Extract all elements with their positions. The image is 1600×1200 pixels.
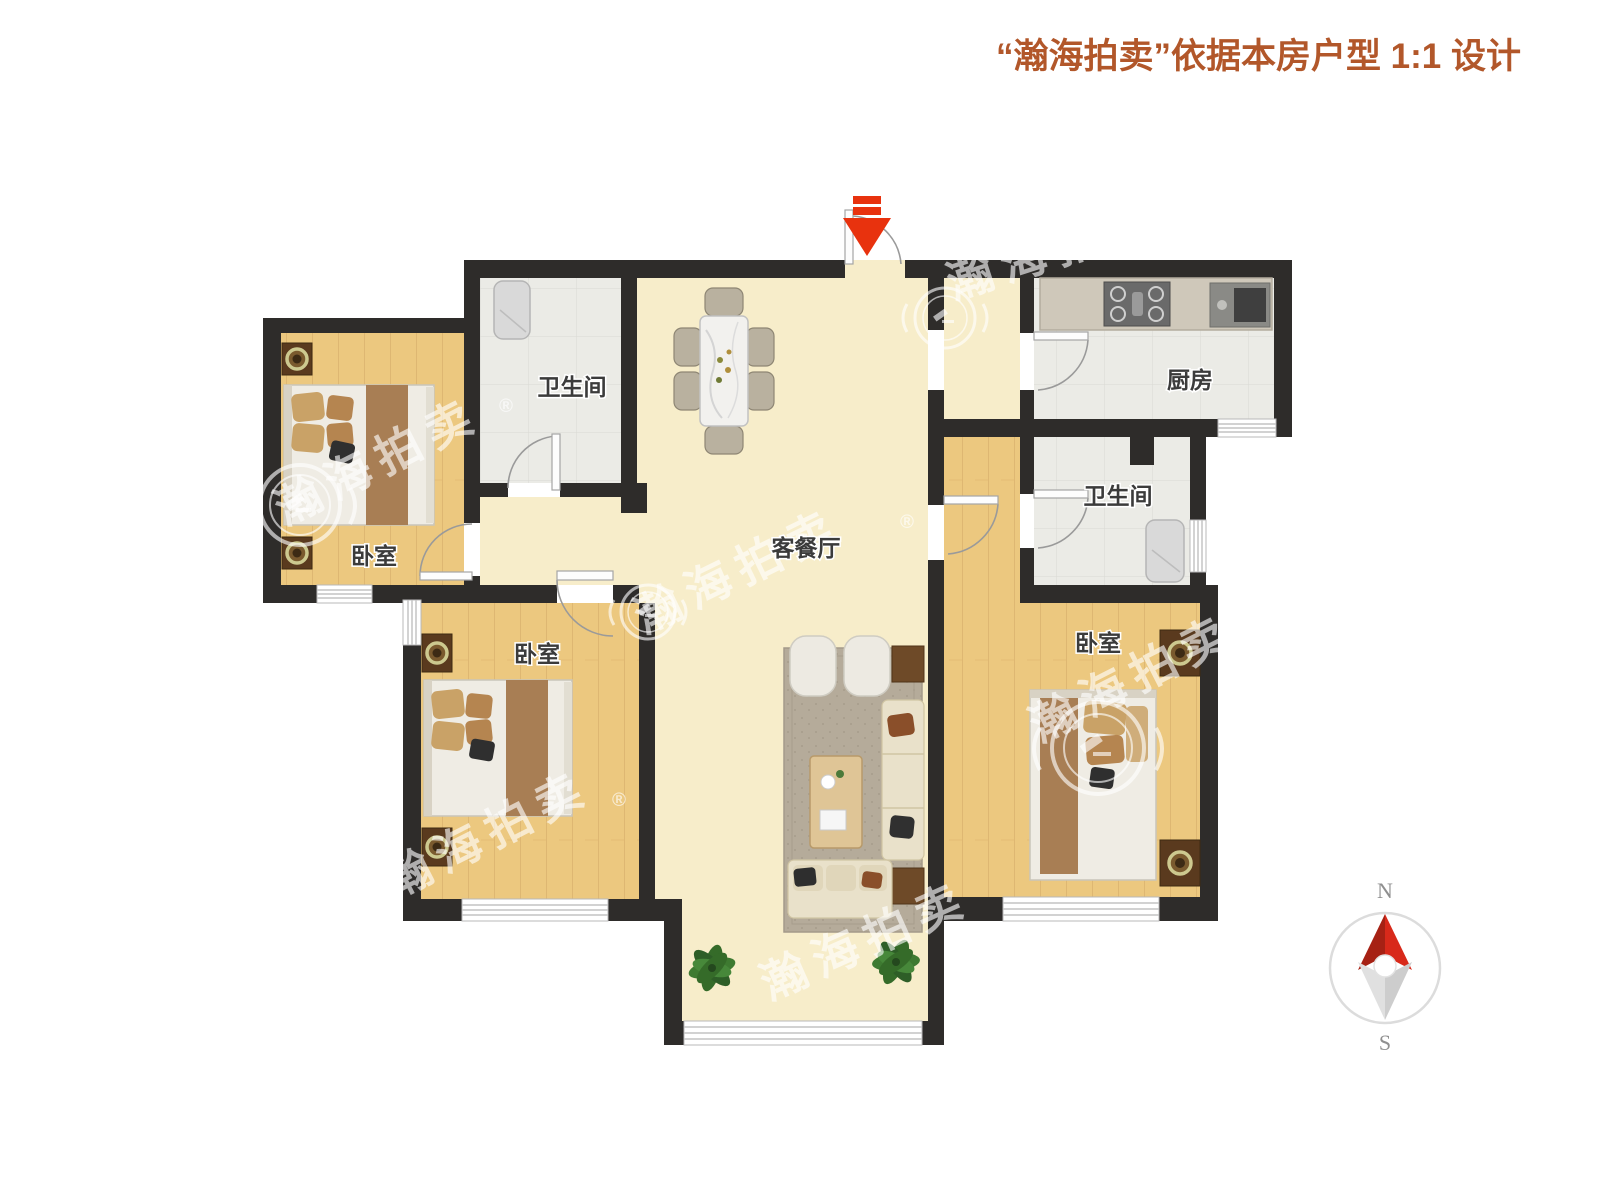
window-kitchen — [1218, 419, 1276, 437]
floor-bedroom-right-nook — [944, 437, 1020, 603]
side-table-icon — [892, 646, 924, 682]
sink-icon — [1210, 283, 1270, 327]
armchair-icon — [844, 636, 890, 696]
coffee-table-icon — [810, 756, 862, 848]
label-bathroom-left: 卫生间 — [538, 374, 607, 400]
kitchen-counter — [1040, 278, 1272, 330]
armchair-icon — [790, 636, 836, 696]
window-bedroom-middle-left — [403, 600, 421, 645]
registered-mark: ® — [499, 396, 513, 417]
entry-threshold — [845, 260, 905, 278]
stove-icon — [1104, 282, 1170, 326]
label-kitchen: 厨房 — [1167, 367, 1213, 393]
compass-hub — [1374, 955, 1396, 977]
registered-mark: ® — [900, 512, 914, 533]
compass: N S — [1330, 878, 1440, 1055]
label-bedroom-middle: 卧室 — [514, 641, 560, 667]
window-bedroom-middle — [462, 899, 608, 921]
label-bathroom-right: 卫生间 — [1084, 483, 1153, 509]
floor-plan-page: 瀚海拍卖 瀚海拍卖 瀚海拍卖 瀚海拍卖 瀚海拍卖 瀚海拍卖 ® ® ® — [0, 0, 1600, 1200]
compass-north-label: N — [1377, 878, 1393, 903]
registered-mark: ® — [612, 790, 626, 811]
compass-south-label: S — [1379, 1030, 1391, 1055]
living-set — [784, 636, 924, 932]
label-bedroom-top-left: 卧室 — [351, 543, 397, 569]
floor-hallway-gap — [621, 513, 637, 585]
window-bathroom-right — [1190, 520, 1206, 572]
label-bedroom-right: 卧室 — [1075, 630, 1121, 656]
page-title: “瀚海拍卖”依据本房户型 1:1 设计 — [996, 37, 1521, 76]
window-bedroom-right — [1003, 897, 1159, 921]
window-bedroom-top-left — [317, 585, 372, 603]
shower-icon — [1146, 520, 1184, 582]
floor-plan: 瀚海拍卖 瀚海拍卖 瀚海拍卖 瀚海拍卖 瀚海拍卖 瀚海拍卖 ® ® ® — [0, 0, 1600, 1200]
window-living-balcony — [684, 1021, 922, 1045]
label-living-dining: 客餐厅 — [772, 535, 841, 561]
